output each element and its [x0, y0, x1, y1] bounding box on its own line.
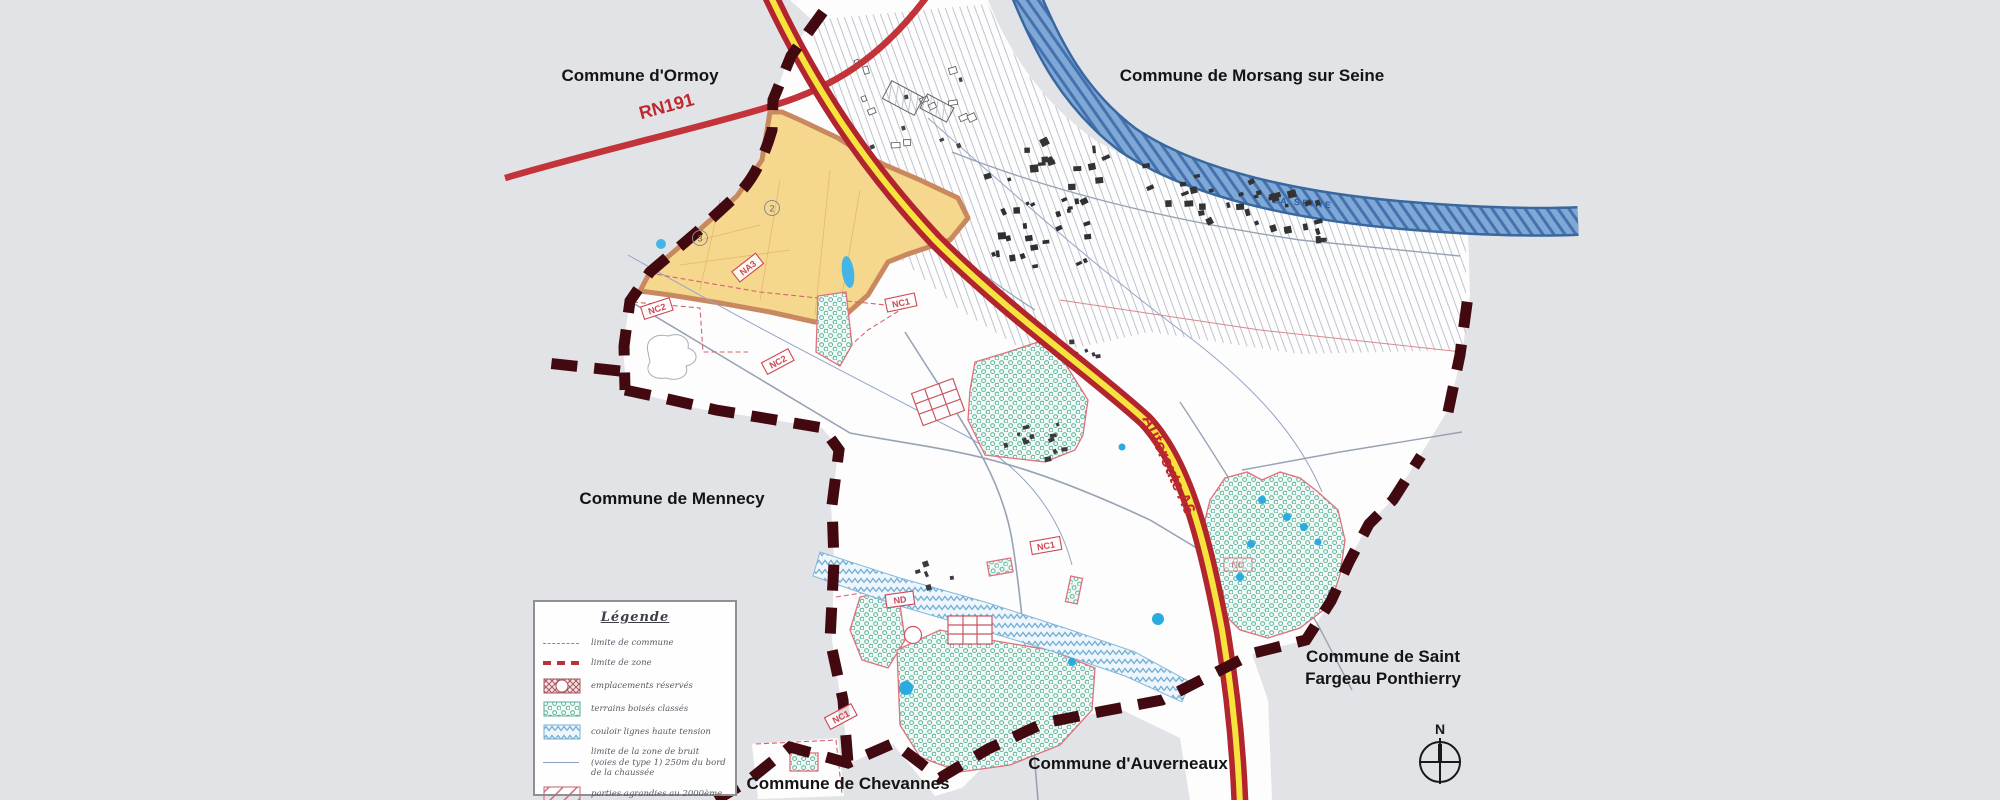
- pond-cyan-small: [656, 239, 666, 249]
- legend-box: Légende limite de commune limite de zone…: [533, 600, 737, 796]
- svg-text:ND: ND: [1232, 560, 1245, 570]
- label-saint-fargeau-2: Fargeau Ponthierry: [1305, 669, 1461, 688]
- north-label: N: [1435, 721, 1445, 737]
- label-chevannes: Commune de Chevannes: [746, 774, 949, 793]
- legend-item-limite-commune: limite de commune: [543, 635, 727, 651]
- svg-text:ND: ND: [893, 594, 908, 606]
- legend-item-emplacements: emplacements réservés: [543, 678, 727, 694]
- enlarged-parts-swatch: [543, 786, 581, 800]
- legend-title: Légende: [543, 610, 727, 625]
- woods-swatch: [543, 701, 581, 717]
- woods-zone-small: [816, 292, 852, 366]
- label-mennecy: Commune de Mennecy: [579, 489, 765, 508]
- legend-item-limite-zone: limite de zone: [543, 655, 727, 671]
- zoning-map-page: LA SEINE: [0, 0, 2000, 800]
- legend-item-couloir-ht: couloir lignes haute tension: [543, 724, 727, 740]
- reserved-swatch: [543, 678, 581, 694]
- commune-limit-swatch: [543, 643, 579, 644]
- noise-limit-swatch: [543, 762, 579, 763]
- svg-text:3: 3: [697, 234, 702, 244]
- svg-text:2: 2: [769, 204, 774, 214]
- zoning-map: LA SEINE: [0, 0, 2000, 800]
- zone-limit-swatch: [543, 661, 579, 665]
- legend-item-parties-agrandies: parties agrandies au 2000ème: [543, 786, 727, 800]
- label-ormoy: Commune d'Ormoy: [561, 66, 719, 85]
- label-morsang: Commune de Morsang sur Seine: [1120, 66, 1385, 85]
- label-saint-fargeau-1: Commune de Saint: [1306, 647, 1460, 666]
- label-auverneaux: Commune d'Auverneaux: [1028, 754, 1228, 773]
- legend-item-limite-bruit: limite de la zone de bruit (voies de typ…: [543, 747, 727, 779]
- legend-item-terrains-boises: terrains boisés classés: [543, 701, 727, 717]
- hv-corridor-swatch: [543, 724, 581, 740]
